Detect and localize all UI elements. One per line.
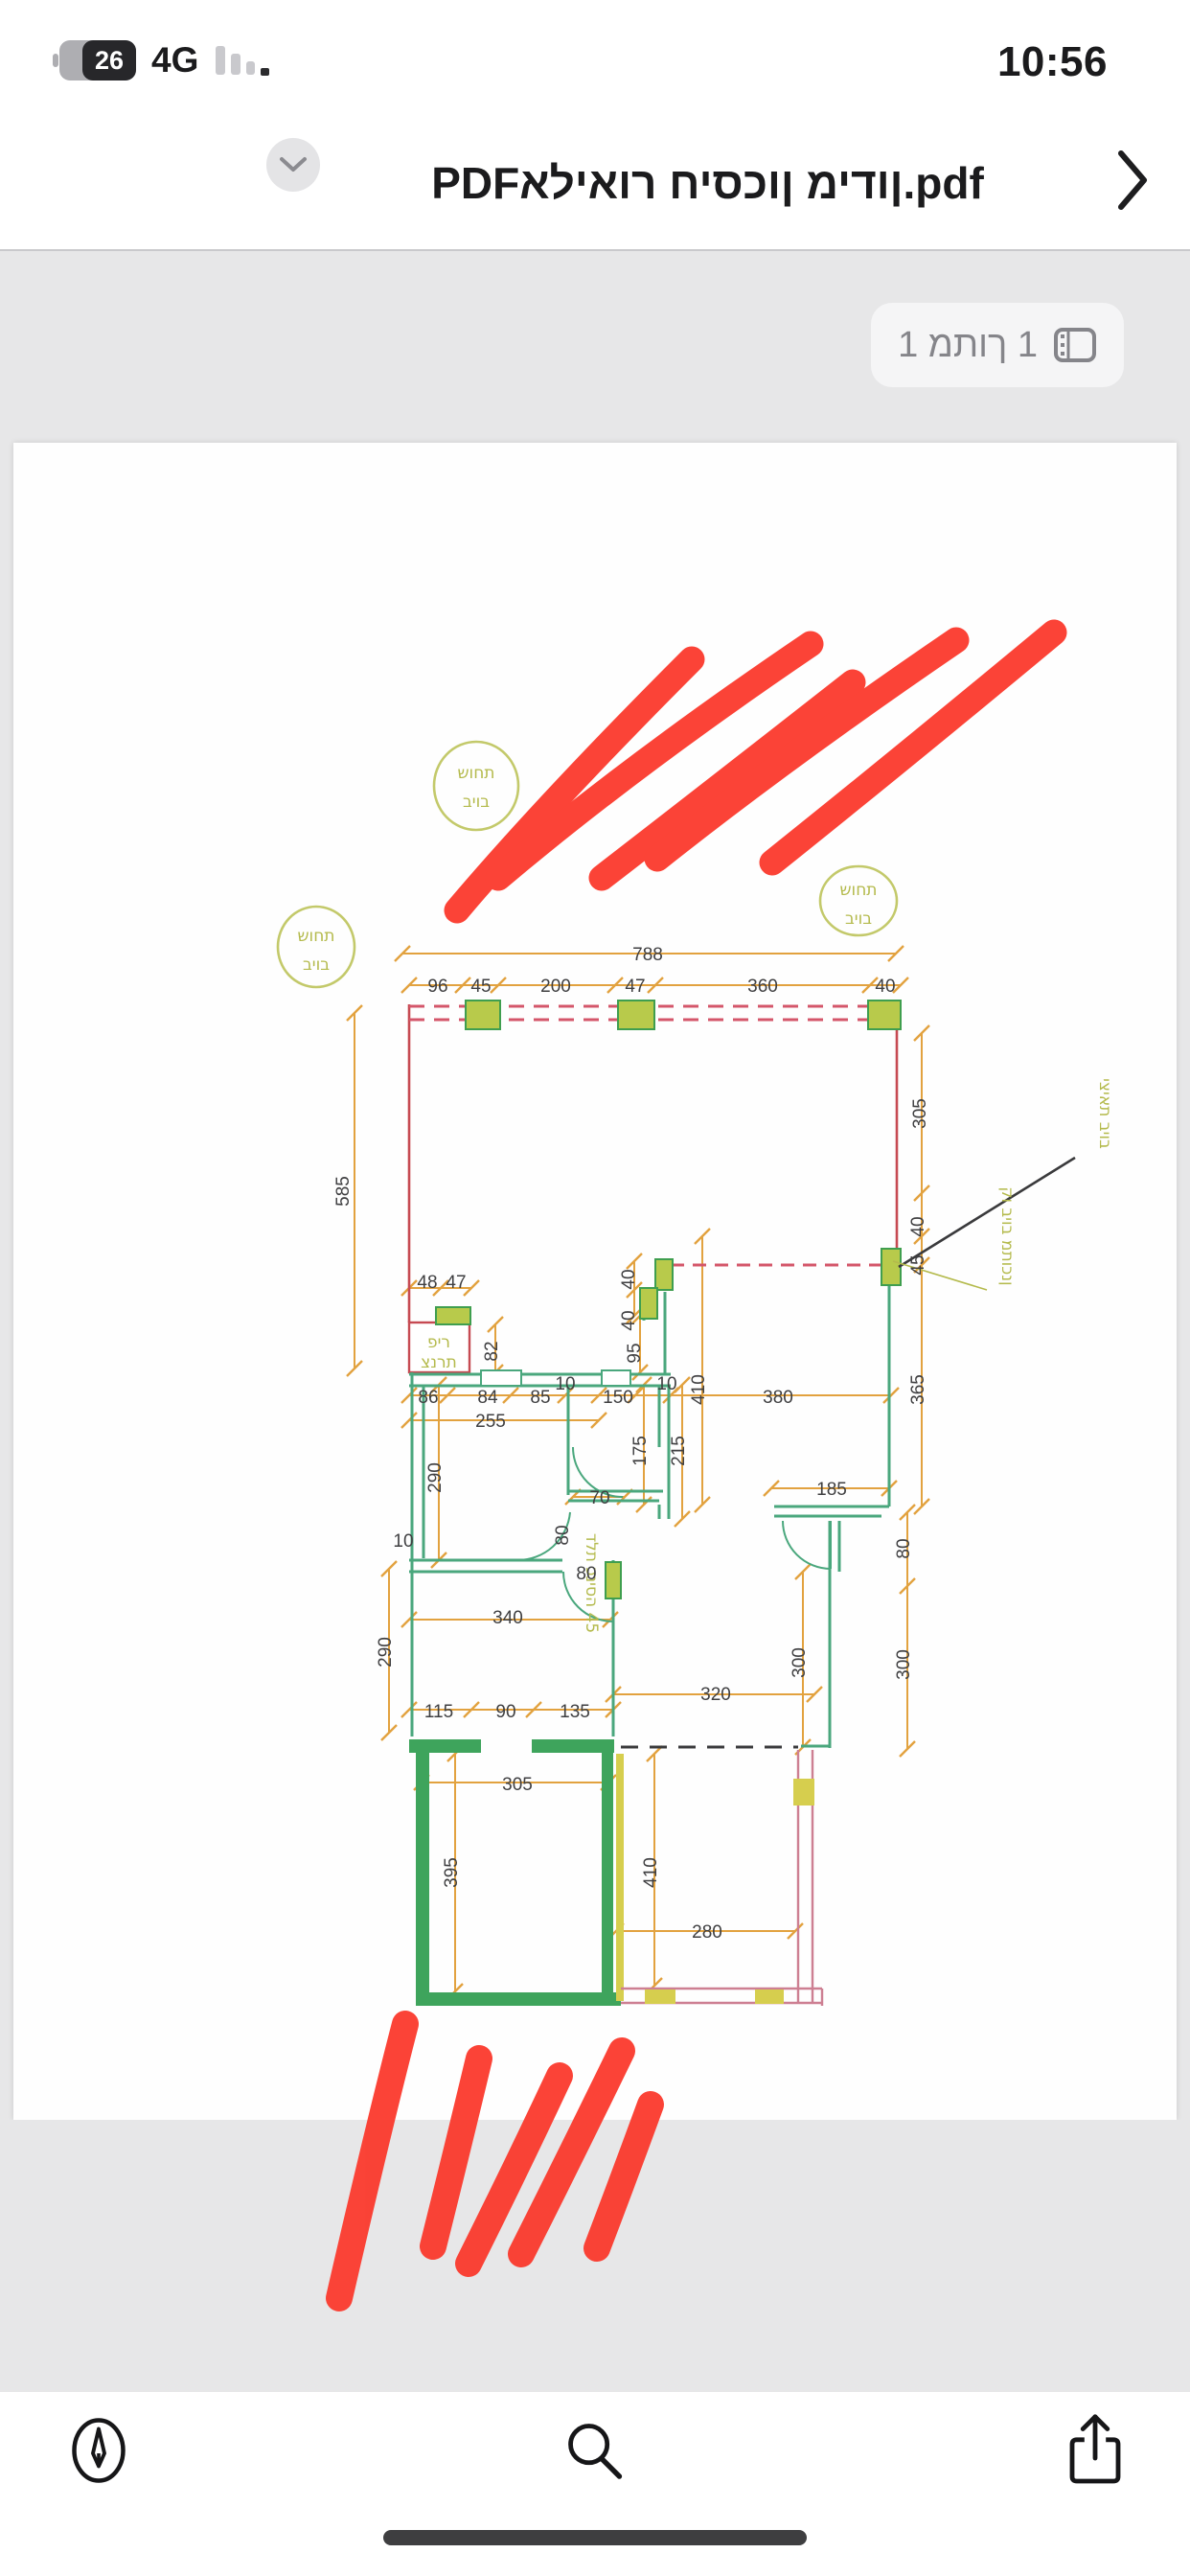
battery-percent: 26 (82, 40, 136, 80)
page-indicator-label: 1 מתוך 1 (898, 325, 1038, 366)
pdf-footer-band (0, 2120, 1190, 2394)
title-hebrew: אליאור חיסכון מידון (519, 157, 903, 209)
pdf-scroll-area (0, 443, 1190, 2120)
page-indicator[interactable]: 1 מתוך 1 (871, 303, 1124, 387)
title-bar: PDF אליאור חיסכון מידון .pdf (0, 115, 1190, 251)
search-button[interactable] (554, 2409, 636, 2492)
cellular-signal-icon (214, 40, 277, 80)
network-type: 4G (151, 40, 198, 80)
markup-button[interactable] (57, 2409, 140, 2492)
search-icon (561, 2417, 629, 2484)
thumbnails-icon (1053, 326, 1097, 364)
forward-button[interactable] (1113, 146, 1152, 219)
battery-icon: 26 (59, 40, 136, 80)
share-icon (1064, 2412, 1126, 2489)
share-button[interactable] (1054, 2409, 1136, 2492)
home-indicator[interactable] (383, 2530, 807, 2545)
screen: { "status": { "time": "10:56", "battery_… (0, 0, 1190, 2576)
title-prefix: PDF (431, 157, 519, 209)
pdf-page[interactable] (13, 443, 1177, 2120)
chevron-down-icon (279, 155, 308, 174)
collapse-title-button[interactable] (266, 138, 320, 192)
chevron-right-icon (1113, 146, 1152, 215)
title-suffix: .pdf (903, 157, 983, 209)
status-bar: 26 4G 10:56 (0, 0, 1190, 115)
clock: 10:56 (997, 38, 1108, 86)
document-title: PDF אליאור חיסכון מידון .pdf (331, 115, 1085, 251)
pdf-header-band: 1 מתוך 1 (0, 251, 1190, 443)
bottom-toolbar (0, 2392, 1190, 2576)
markup-pen-icon (67, 2414, 130, 2487)
